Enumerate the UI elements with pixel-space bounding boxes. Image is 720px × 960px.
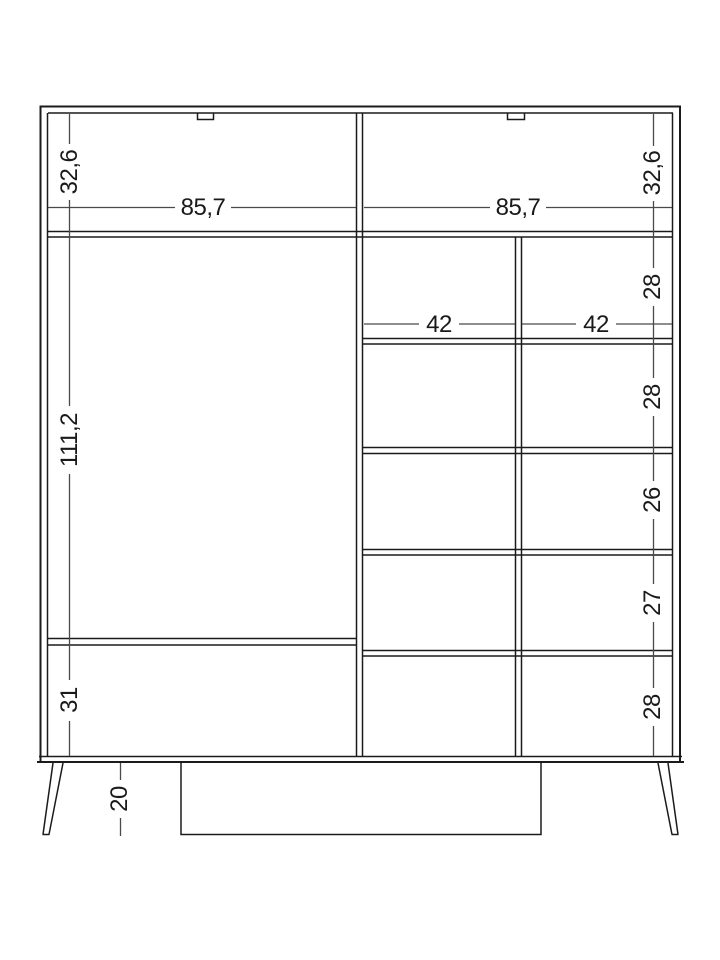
dim-label-right-shelf1-height: 28 — [639, 274, 666, 300]
dimension-lines — [48, 114, 672, 836]
top-notch-left — [198, 113, 214, 120]
dim-label-middle-compartment-width: 42 — [426, 311, 452, 338]
dim-label-leg-height: 20 — [106, 786, 133, 812]
top-notch-right — [508, 113, 525, 120]
dim-label-right-top-height: 32,6 — [639, 150, 666, 195]
dim-label-right-shelf3-height: 26 — [639, 487, 666, 513]
dim-label-left-bottom-height: 31 — [56, 687, 83, 713]
dim-label-right-shelf4-height: 27 — [639, 590, 666, 616]
legs — [43, 763, 679, 835]
dim-label-left-section-width: 85,7 — [181, 194, 226, 221]
dim-label-right-shelf5-height: 28 — [639, 694, 666, 720]
dim-label-right-compartment-width: 42 — [583, 311, 609, 338]
dimension-labels: 32,6 111,2 31 32,6 28 28 26 27 28 85,7 8… — [56, 149, 666, 811]
drawing-canvas: 32,6 111,2 31 32,6 28 28 26 27 28 85,7 8… — [0, 0, 720, 960]
center-base-panel — [181, 763, 541, 835]
dim-label-left-middle-height: 111,2 — [56, 413, 83, 467]
wardrobe-dimension-drawing: 32,6 111,2 31 32,6 28 28 26 27 28 85,7 8… — [0, 0, 720, 960]
dim-label-right-section-width: 85,7 — [496, 194, 541, 221]
cabinet-carcass — [37, 106, 684, 763]
dim-label-right-shelf2-height: 28 — [639, 384, 666, 410]
dim-label-left-top-height: 32,6 — [56, 149, 83, 194]
